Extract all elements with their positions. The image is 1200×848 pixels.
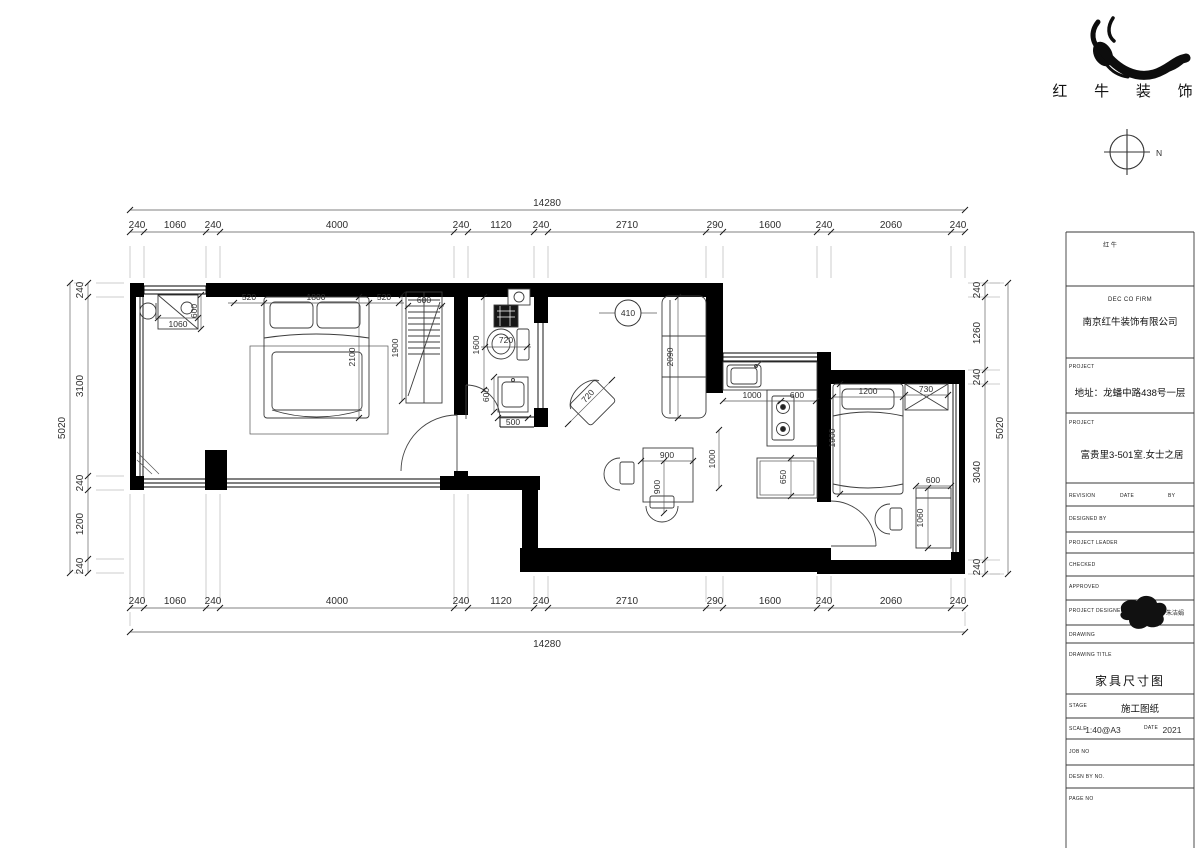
dim-label: 500 <box>506 417 520 427</box>
dim-label: 240 <box>453 596 470 607</box>
dim-label: 240 <box>75 557 86 574</box>
dim-label: 4000 <box>326 596 349 607</box>
dim-label: 1060 <box>164 596 187 607</box>
bedroom2-furniture <box>833 384 951 548</box>
drawing-label: DRAWING <box>1069 632 1095 638</box>
dim-label: 650 <box>778 470 788 484</box>
dim-label: 240 <box>533 220 550 231</box>
tb-date-value: 2021 <box>1163 725 1182 735</box>
dim-label: 240 <box>75 281 86 298</box>
door-layer <box>401 323 876 546</box>
drawing-sheet: 红 牛 装 饰 N <box>0 0 1200 848</box>
project-label-2: PROJECT <box>1069 420 1094 426</box>
dim-label: 600 <box>481 388 491 402</box>
dim-total: 5020 <box>995 416 1006 439</box>
project-designer-label: PROJECT DESIGNER <box>1069 608 1125 614</box>
dim-label: 290 <box>707 596 724 607</box>
dim-label: 1800 <box>307 292 326 302</box>
drawing-title-label: DRAWING TITLE <box>1069 652 1112 658</box>
north-label: N <box>1156 148 1162 158</box>
dim-label: 600 <box>926 475 940 485</box>
dim-total: 14280 <box>533 639 561 650</box>
dim-label: 520 <box>377 292 391 302</box>
dims-left: 240 3100 240 1200 240 5020 <box>57 281 86 574</box>
designer-signature-stamp <box>1120 596 1166 629</box>
dim-label: 2100 <box>347 347 357 366</box>
dims-top: 14280 240 1060 240 4000 240 1120 240 271… <box>129 198 967 231</box>
dim-label: 720 <box>499 335 513 345</box>
north-indicator: N <box>1104 129 1162 175</box>
dim-label: 600 <box>790 390 804 400</box>
dim-label: 240 <box>533 596 550 607</box>
job-no-label: JOB NO <box>1069 749 1089 755</box>
dims-right: 240 1260 240 3040 240 5020 <box>972 281 1006 575</box>
dim-label: 900 <box>652 480 662 494</box>
dim-label: 1060 <box>915 508 925 527</box>
dim-label: 240 <box>950 220 967 231</box>
dim-label: 900 <box>660 450 674 460</box>
dim-label: 4000 <box>326 220 349 231</box>
dim-label: 240 <box>129 220 146 231</box>
dim-label: 3040 <box>972 460 983 483</box>
company-logo: 红 牛 装 饰 <box>1052 18 1200 100</box>
dim-label: 240 <box>950 596 967 607</box>
living-room-furniture <box>564 296 706 522</box>
desn-by-no-label: DESN BY NO. <box>1069 774 1104 780</box>
date-label: DATE <box>1120 493 1135 499</box>
dim-label: 240 <box>972 368 983 385</box>
dim-label: 1900 <box>827 428 837 447</box>
scale-value: 1:40@A3 <box>1085 725 1121 735</box>
firm-label: DEC CO FIRM <box>1108 297 1152 303</box>
dim-label: 1600 <box>759 220 782 231</box>
page-no-label: PAGE NO <box>1069 796 1094 802</box>
dim-label: 240 <box>816 220 833 231</box>
stage-label: STAGE <box>1069 703 1087 709</box>
project-label: PROJECT <box>1069 364 1094 370</box>
project-leader-label: PROJECT LEADER <box>1069 540 1118 546</box>
dim-label: 1060 <box>164 220 187 231</box>
checked-label: CHECKED <box>1069 562 1096 568</box>
dim-label: 240 <box>453 220 470 231</box>
grid-bubble-label: 410 <box>621 308 635 318</box>
company-logo-text: 红 牛 装 饰 <box>1052 82 1200 100</box>
dim-total: 14280 <box>533 198 561 209</box>
dim-label: 1900 <box>390 338 400 357</box>
dim-label: 2060 <box>880 220 903 231</box>
dim-label: 1600 <box>759 596 782 607</box>
interior-dim-ticks <box>155 292 954 551</box>
dim-label: 290 <box>707 220 724 231</box>
dim-label: 2060 <box>880 596 903 607</box>
dim-label: 240 <box>129 596 146 607</box>
company-name: 南京红牛装饰有限公司 <box>1082 316 1177 328</box>
approved-label: APPROVED <box>1069 584 1099 590</box>
tb-date-label: DATE <box>1144 725 1159 731</box>
dim-label: 520 <box>242 292 256 302</box>
dim-label: 1200 <box>75 512 86 535</box>
dim-label: 600 <box>189 304 199 318</box>
dim-label: 3100 <box>75 374 86 397</box>
designer-signature-text: 朱洁娟 <box>1166 609 1184 617</box>
dim-label: 720 <box>579 387 596 404</box>
dim-total: 5020 <box>57 416 68 439</box>
dim-label: 1000 <box>707 449 717 468</box>
project-name: 富贵里3-501室.女士之居 <box>1081 449 1184 461</box>
bull-icon <box>1089 18 1186 77</box>
dim-label: 240 <box>816 596 833 607</box>
north-cross <box>1104 129 1150 175</box>
dim-label: 240 <box>205 220 222 231</box>
dim-label: 1060 <box>169 319 188 329</box>
dim-label: 1120 <box>490 596 512 607</box>
floor-plan-canvas: 红 牛 装 饰 N <box>0 0 1200 848</box>
dim-label: 1200 <box>859 386 878 396</box>
title-block: 红 牛 DEC CO FIRM 南京红牛装饰有限公司 PROJECT 地址：龙蟠… <box>1066 232 1194 848</box>
master-bedroom-furniture <box>140 292 442 434</box>
interior-dim-lines <box>158 295 951 548</box>
bedroom1-door <box>401 415 457 471</box>
bathroom-pocket-door <box>538 323 543 408</box>
dim-label: 2710 <box>616 596 639 607</box>
kitchen-furniture <box>723 361 817 498</box>
dim-label: 240 <box>75 474 86 491</box>
dim-label: 1600 <box>471 335 481 354</box>
bedroom2-door <box>831 501 876 546</box>
by-label: BY <box>1168 493 1176 499</box>
dims-bottom: 240 1060 240 4000 240 1120 240 2710 290 … <box>129 596 967 650</box>
dim-label: 240 <box>972 281 983 298</box>
drawing-title: 家具尺寸图 <box>1095 673 1165 688</box>
mini-logo-text: 红 牛 <box>1103 241 1117 249</box>
stage-value: 施工图纸 <box>1121 703 1160 715</box>
designed-by-label: DESIGNED BY <box>1069 516 1107 522</box>
dim-label: 1260 <box>972 321 983 344</box>
dim-label: 240 <box>205 596 222 607</box>
bathroom-fixtures <box>487 289 530 412</box>
dim-label: 600 <box>417 295 431 305</box>
revision-label: REVISION <box>1069 493 1095 499</box>
grid-bubble: 410 <box>599 300 657 326</box>
dim-label: 2090 <box>665 347 675 366</box>
dim-label: 1120 <box>490 220 512 231</box>
project-address: 地址：龙蟠中路438号一层 <box>1075 387 1186 399</box>
dim-label: 2710 <box>616 220 639 231</box>
dim-label: 240 <box>972 558 983 575</box>
dim-label: 1000 <box>743 390 762 400</box>
dim-label: 730 <box>919 384 933 394</box>
